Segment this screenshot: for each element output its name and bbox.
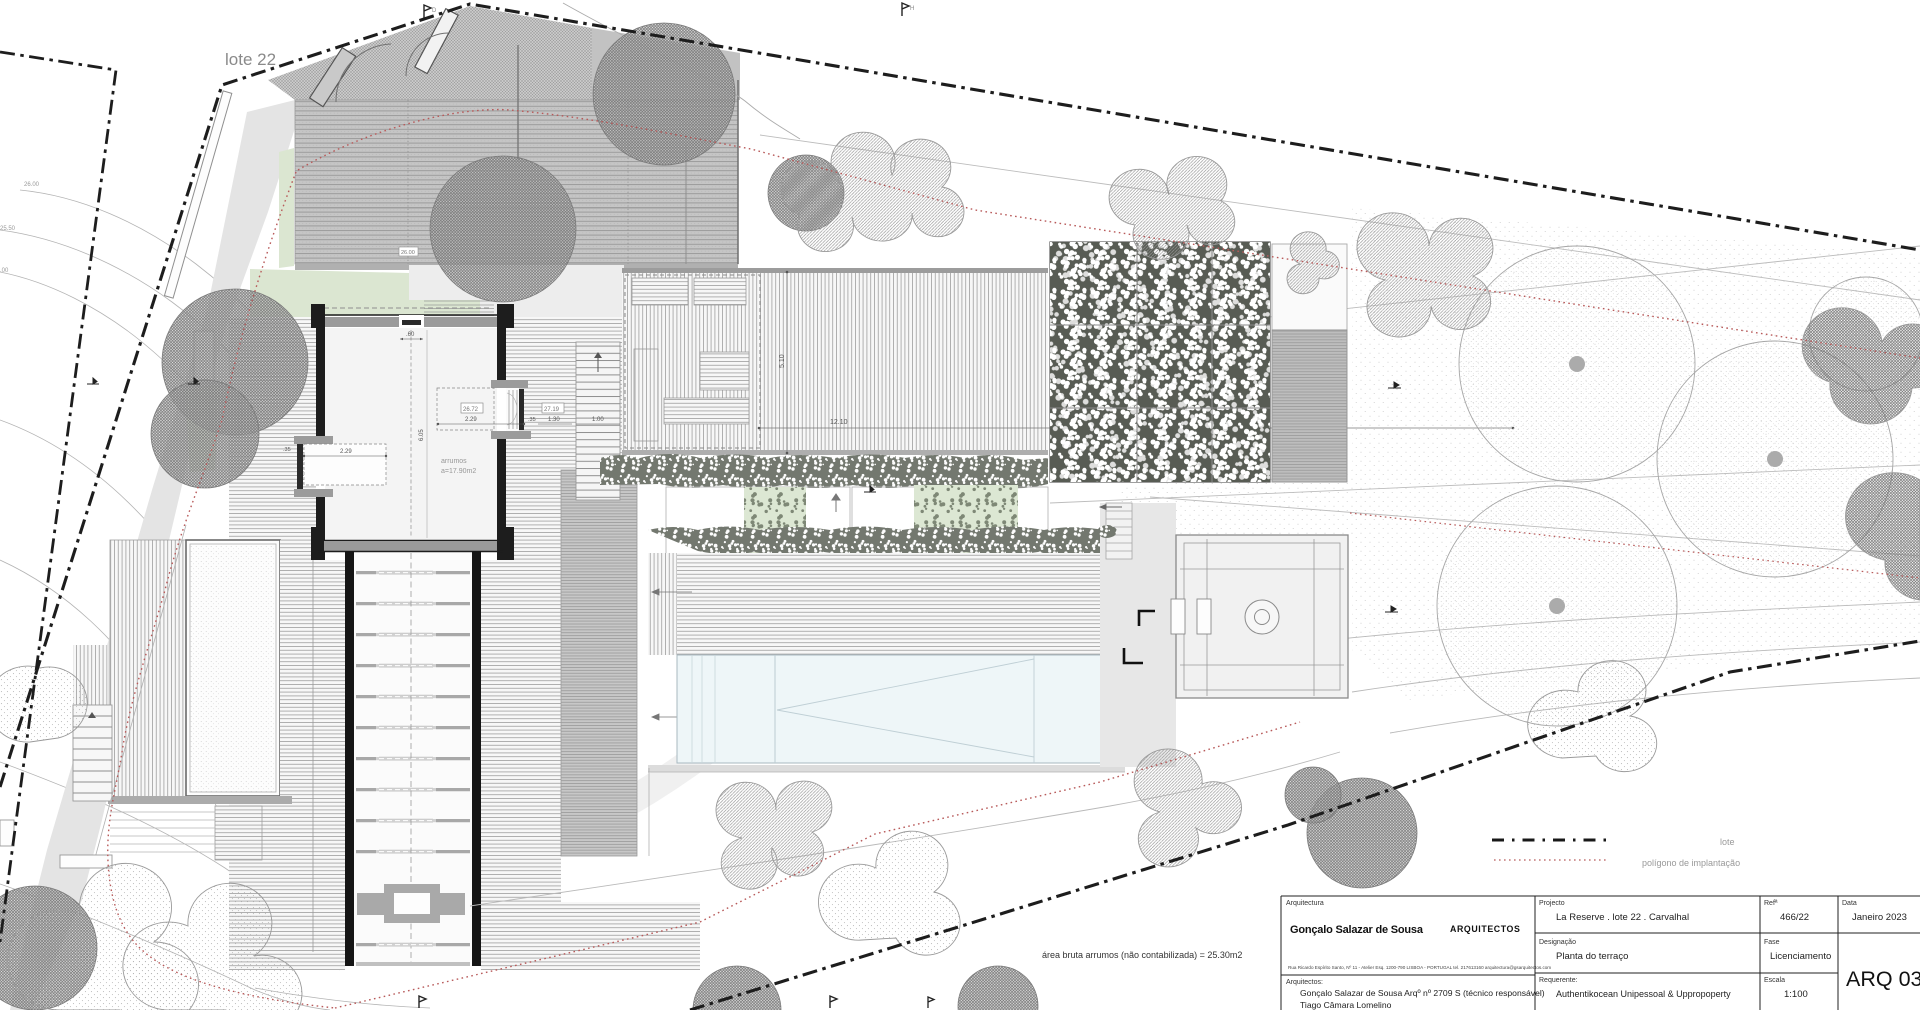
svg-text:.60: .60 [406,332,415,338]
svg-text:6.05: 6.05 [419,429,425,441]
svg-text:Escala: Escala [1764,977,1785,984]
svg-text:Licenciamento: Licenciamento [1770,951,1831,962]
svg-text:Janeiro 2023: Janeiro 2023 [1852,912,1907,923]
svg-text:1.00: 1.00 [592,417,604,423]
svg-text:polígono de implantação: polígono de implantação [1642,858,1740,868]
svg-text:1.30: 1.30 [548,417,560,423]
svg-text:12.10: 12.10 [830,419,848,426]
svg-text:Requerente:: Requerente: [1539,977,1578,984]
svg-text:ARQUITECTOS: ARQUITECTOS [1450,924,1520,934]
svg-text:D: D [432,8,437,14]
svg-text:2.29: 2.29 [340,449,352,455]
svg-text:a=17.90m2: a=17.90m2 [441,468,476,475]
svg-text:H: H [910,6,914,12]
svg-text:27.19: 27.19 [544,407,560,413]
svg-text:lote 22: lote 22 [225,50,276,69]
svg-text:Arquitectos:: Arquitectos: [1286,979,1323,986]
svg-text:Gonçalo Salazar de Sousa: Gonçalo Salazar de Sousa [1290,924,1424,936]
svg-text:área bruta arrumos (não contab: área bruta arrumos (não contabilizada) =… [1042,950,1242,960]
svg-text:26.72: 26.72 [463,407,479,413]
svg-text:Gonçalo Salazar de Sousa Arqº: Gonçalo Salazar de Sousa Arqº nº 2709 S … [1300,988,1545,998]
svg-text:26.00: 26.00 [24,182,40,188]
svg-text:ARQ 03: ARQ 03 [1846,967,1920,991]
svg-text:Designação: Designação [1539,939,1576,946]
svg-text:26.00: 26.00 [401,250,415,256]
svg-text:Projecto: Projecto [1539,900,1565,907]
svg-text:Tiago Câmara Lomelino: Tiago Câmara Lomelino [1300,1000,1392,1010]
svg-text:La Reserve . lote 22 .: La Reserve . lote 22 . Carvalhal [1556,912,1689,923]
svg-text:1:100: 1:100 [1784,989,1808,1000]
svg-text:2.29: 2.29 [465,417,477,423]
svg-text:.35: .35 [283,447,291,453]
svg-text:466/22: 466/22 [1780,912,1809,923]
svg-text:Data: Data [1842,900,1857,907]
svg-text:Refª: Refª [1764,900,1778,907]
svg-text:25.50: 25.50 [0,226,16,232]
svg-text:Authentikocean Unipessoal & Up: Authentikocean Unipessoal & Uppropoperty [1556,989,1731,999]
svg-text:Fase: Fase [1764,939,1780,946]
svg-text:Planta do terraço: Planta do terraço [1556,951,1628,962]
svg-text:lote: lote [1720,837,1735,847]
svg-text:.00: .00 [0,268,9,274]
svg-text:Arquitectura: Arquitectura [1286,900,1324,907]
svg-text:.35: .35 [528,417,536,423]
svg-text:Rua Ricardo Espírito Santo, Nº: Rua Ricardo Espírito Santo, Nº 11 - Atel… [1288,965,1551,970]
svg-text:5.10: 5.10 [779,354,786,368]
svg-text:arrumos: arrumos [441,458,467,465]
